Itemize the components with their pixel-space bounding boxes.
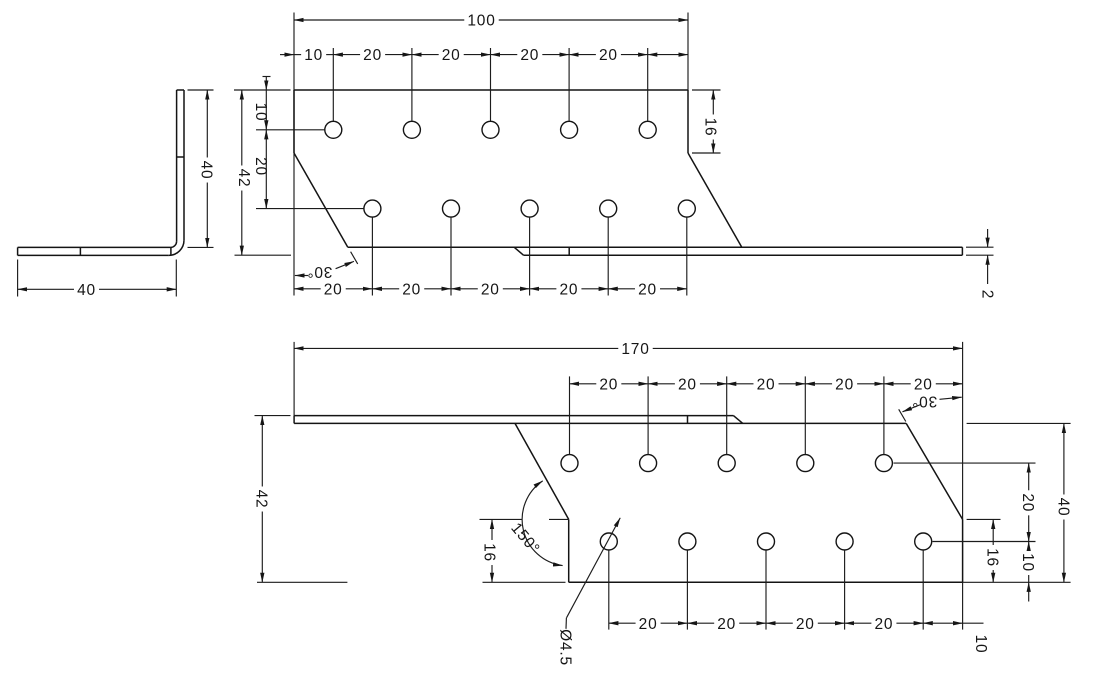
svg-text:2: 2	[978, 290, 995, 299]
svg-text:16: 16	[480, 543, 497, 562]
svg-text:10: 10	[304, 47, 323, 64]
svg-text:20: 20	[757, 376, 776, 393]
svg-text:20: 20	[599, 47, 618, 64]
svg-text:42: 42	[235, 169, 252, 188]
svg-text:30°: 30°	[911, 392, 937, 409]
svg-text:100: 100	[467, 13, 495, 30]
svg-text:10: 10	[1019, 553, 1036, 572]
svg-text:20: 20	[1019, 493, 1036, 512]
svg-text:30°: 30°	[307, 263, 333, 280]
svg-text:20: 20	[252, 157, 269, 176]
svg-text:40: 40	[77, 282, 96, 299]
svg-text:42: 42	[253, 490, 270, 509]
svg-text:20: 20	[796, 616, 815, 633]
svg-text:20: 20	[599, 376, 618, 393]
svg-text:20: 20	[717, 616, 736, 633]
svg-text:20: 20	[835, 376, 854, 393]
svg-text:10: 10	[252, 103, 269, 122]
svg-text:20: 20	[874, 616, 893, 633]
svg-text:20: 20	[639, 616, 658, 633]
svg-text:16: 16	[702, 118, 719, 137]
svg-text:20: 20	[638, 281, 657, 298]
svg-text:20: 20	[559, 281, 578, 298]
svg-text:40: 40	[198, 161, 215, 180]
svg-text:20: 20	[520, 47, 539, 64]
svg-text:20: 20	[914, 376, 933, 393]
svg-text:20: 20	[678, 376, 697, 393]
svg-text:170: 170	[621, 341, 649, 358]
svg-text:Ø4.5: Ø4.5	[557, 629, 574, 666]
svg-text:20: 20	[363, 47, 382, 64]
svg-text:20: 20	[481, 281, 500, 298]
svg-text:20: 20	[442, 47, 461, 64]
svg-text:20: 20	[324, 281, 343, 298]
svg-text:16: 16	[984, 548, 1001, 567]
svg-text:20: 20	[402, 281, 421, 298]
svg-text:10: 10	[972, 635, 989, 654]
svg-text:40: 40	[1054, 498, 1071, 517]
